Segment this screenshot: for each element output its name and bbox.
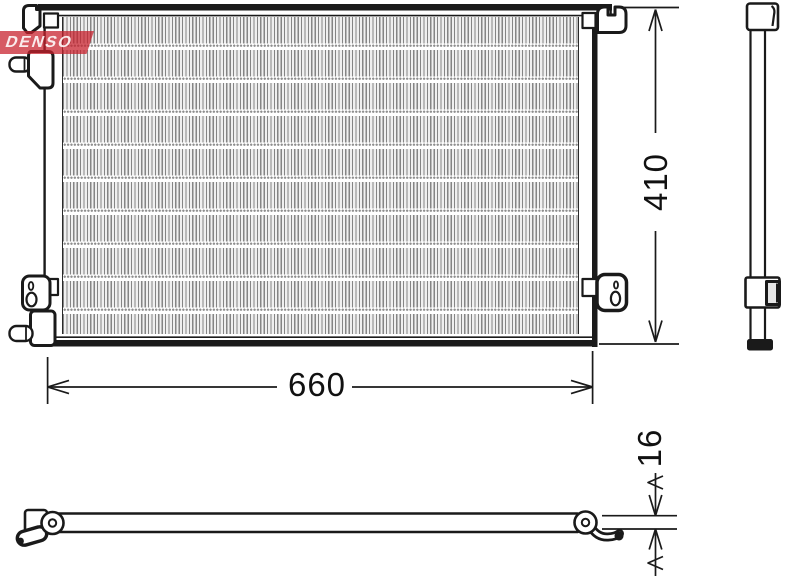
denso-logo-text: DENSO: [3, 34, 75, 51]
top-view: [16, 510, 624, 547]
drawing-linework: [0, 0, 785, 578]
top-view-body: [28, 514, 578, 533]
lower-left-pipe: [10, 326, 33, 341]
thickness-dimension-label: 16: [630, 425, 670, 471]
front-view: [10, 4, 627, 347]
upper-left-fitting-block: [29, 52, 54, 89]
lower-left-bracket: [23, 276, 51, 310]
side-view: [746, 4, 781, 351]
header-tank-bar: [38, 4, 612, 11]
bottom-tank-bar: [43, 340, 598, 347]
top-view-right-hook-tip: [615, 532, 624, 541]
top-left-bracket: [24, 6, 41, 33]
bottom-right-bracket: [597, 275, 627, 311]
width-dimension-label: 660: [272, 366, 362, 404]
denso-logo: DENSO: [0, 31, 94, 54]
technical-drawing-canvas: DENSO 660 410 16: [0, 0, 785, 578]
height-dimension-label: 410: [634, 136, 678, 228]
lower-left-fitting-block: [31, 311, 56, 346]
side-view-bottom-cap: [748, 340, 773, 351]
